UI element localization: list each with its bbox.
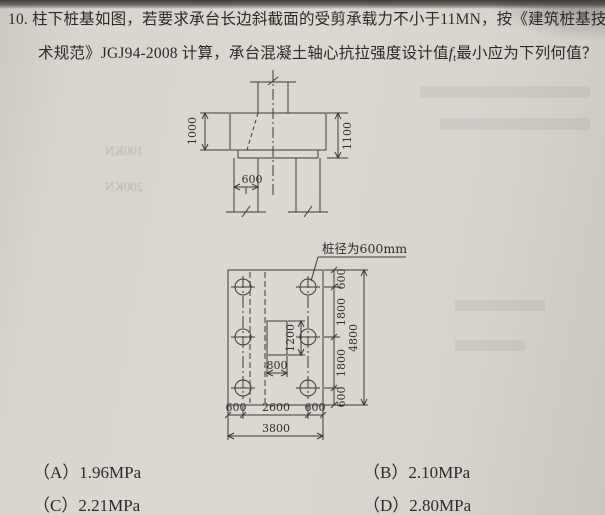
option-a-label: （A） [33,463,79,482]
pile-cap-elevation [230,113,326,150]
dim-1100: 1100 [327,113,354,158]
option-c[interactable]: （C）2.21MPa [33,491,140,515]
option-d-value: 2.80MPa [409,496,471,515]
svg-text:1200: 1200 [284,324,297,352]
svg-text:4800: 4800 [347,324,360,352]
svg-text:1000: 1000 [186,117,199,145]
svg-text:600: 600 [226,401,247,414]
option-c-label: （C） [33,496,78,515]
option-d-label: （D） [363,496,409,515]
option-b[interactable]: （B）2.10MPa [363,458,470,483]
option-a-value: 1.96MPa [79,463,141,482]
dim-chain-right: 600 1800 1800 600 4800 [324,267,368,408]
dim-1000: 1000 [186,113,229,150]
svg-text:1800: 1800 [335,298,348,326]
pile-circles [231,279,320,396]
exam-page: 100KN 200KN 10. 柱下桩基如图，若要求承台长边斜截面的受剪承载力不… [0,0,605,515]
svg-text:600: 600 [335,269,348,290]
pile-diameter-note: 桩径为600mm [311,241,407,281]
svg-text:800: 800 [267,359,288,372]
dim-chain-bottom: 600 2600 600 3800 [225,401,326,440]
option-d[interactable]: （D）2.80MPa [363,491,471,515]
plan-view: 1200 800 [225,241,407,440]
pile-cap-figure: 1000 1100 600 [0,0,605,515]
svg-text:3800: 3800 [262,422,290,435]
pile-note-label: 桩径为600mm [322,241,407,256]
svg-text:1800: 1800 [335,349,348,377]
option-a[interactable]: （A）1.96MPa [33,458,141,483]
option-c-value: 2.21MPa [78,496,140,515]
svg-text:600: 600 [335,387,348,408]
dim-1200: 1200 [284,321,305,355]
svg-text:600: 600 [242,173,263,186]
svg-text:600: 600 [305,401,326,414]
option-b-label: （B） [363,463,408,482]
dim-800: 800 [267,356,288,377]
svg-text:1100: 1100 [341,122,354,150]
shear-plane-line [247,113,258,150]
svg-text:2600: 2600 [262,401,290,414]
elevation-view: 1000 1100 600 [186,70,354,217]
option-b-value: 2.10MPa [408,463,470,482]
